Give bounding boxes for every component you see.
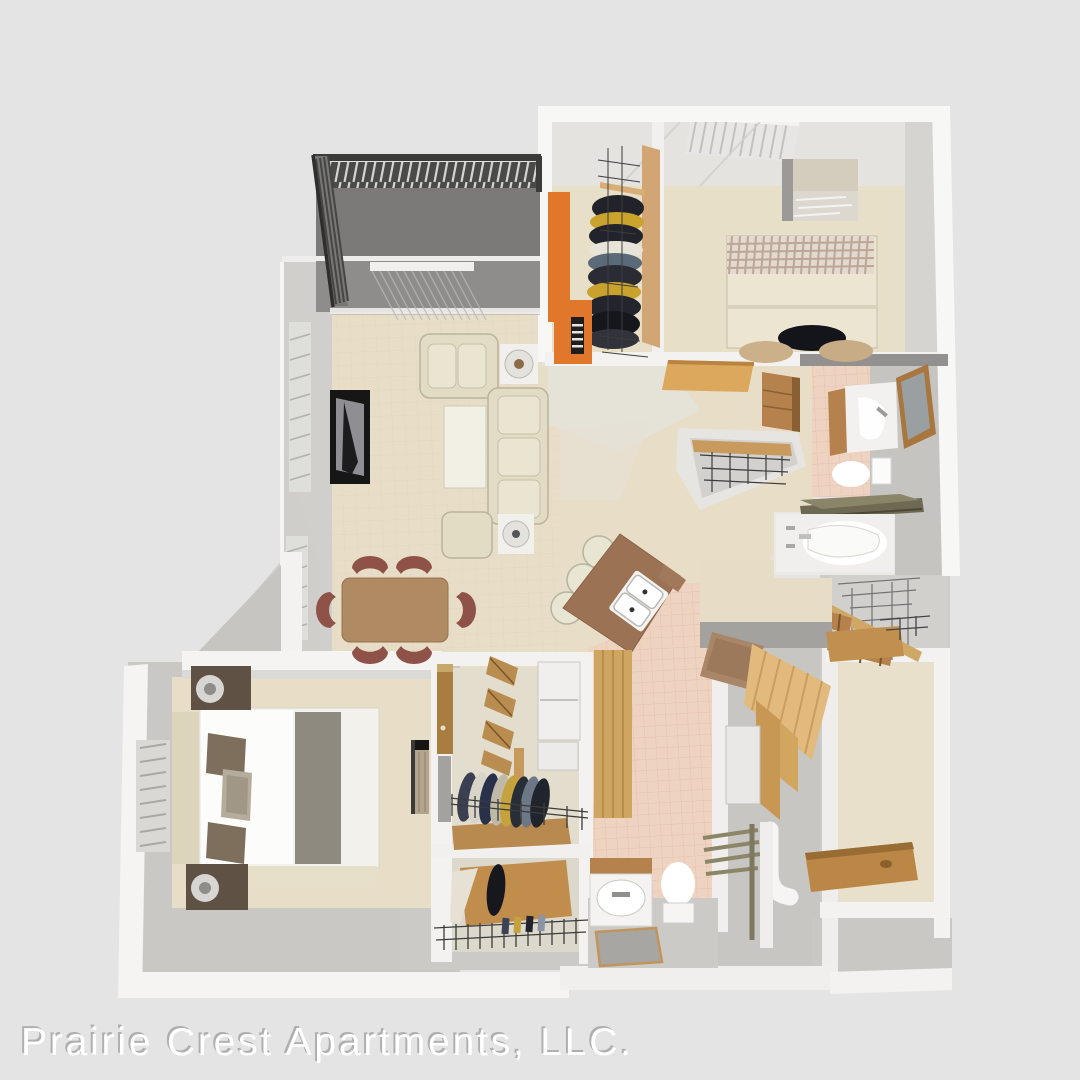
- svg-text:Prairie Crest Apartments, LLC.: Prairie Crest Apartments, LLC.: [21, 1021, 634, 1064]
